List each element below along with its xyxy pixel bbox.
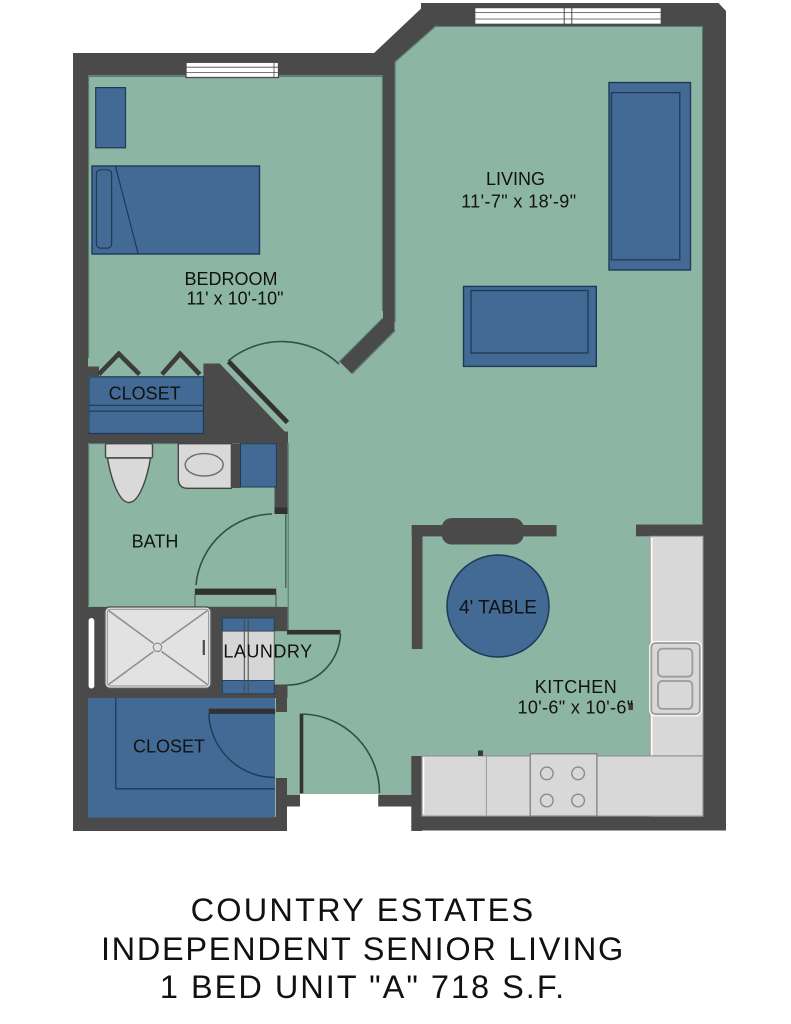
svg-text:LAUNDRY: LAUNDRY <box>223 642 312 662</box>
svg-text:11' x 10'-10": 11' x 10'-10" <box>187 289 284 309</box>
svg-text:1 BED UNIT "A" 718 S.F.: 1 BED UNIT "A" 718 S.F. <box>160 969 566 1005</box>
svg-text:LIVING: LIVING <box>486 169 545 189</box>
svg-text:CLOSET: CLOSET <box>109 384 181 404</box>
svg-text:BATH: BATH <box>132 532 179 552</box>
svg-text:COUNTRY ESTATES: COUNTRY ESTATES <box>191 892 536 928</box>
svg-text:CLOSET: CLOSET <box>133 736 205 756</box>
svg-text:INDEPENDENT SENIOR LIVING: INDEPENDENT SENIOR LIVING <box>101 931 625 967</box>
svg-text:KITCHEN: KITCHEN <box>535 677 618 697</box>
svg-text:11'-7" x 18'-9": 11'-7" x 18'-9" <box>461 192 576 212</box>
svg-text:BEDROOM: BEDROOM <box>184 269 277 289</box>
svg-text:4' TABLE: 4' TABLE <box>459 598 537 619</box>
svg-text:10'-6" x 10'-6": 10'-6" x 10'-6" <box>518 698 634 718</box>
